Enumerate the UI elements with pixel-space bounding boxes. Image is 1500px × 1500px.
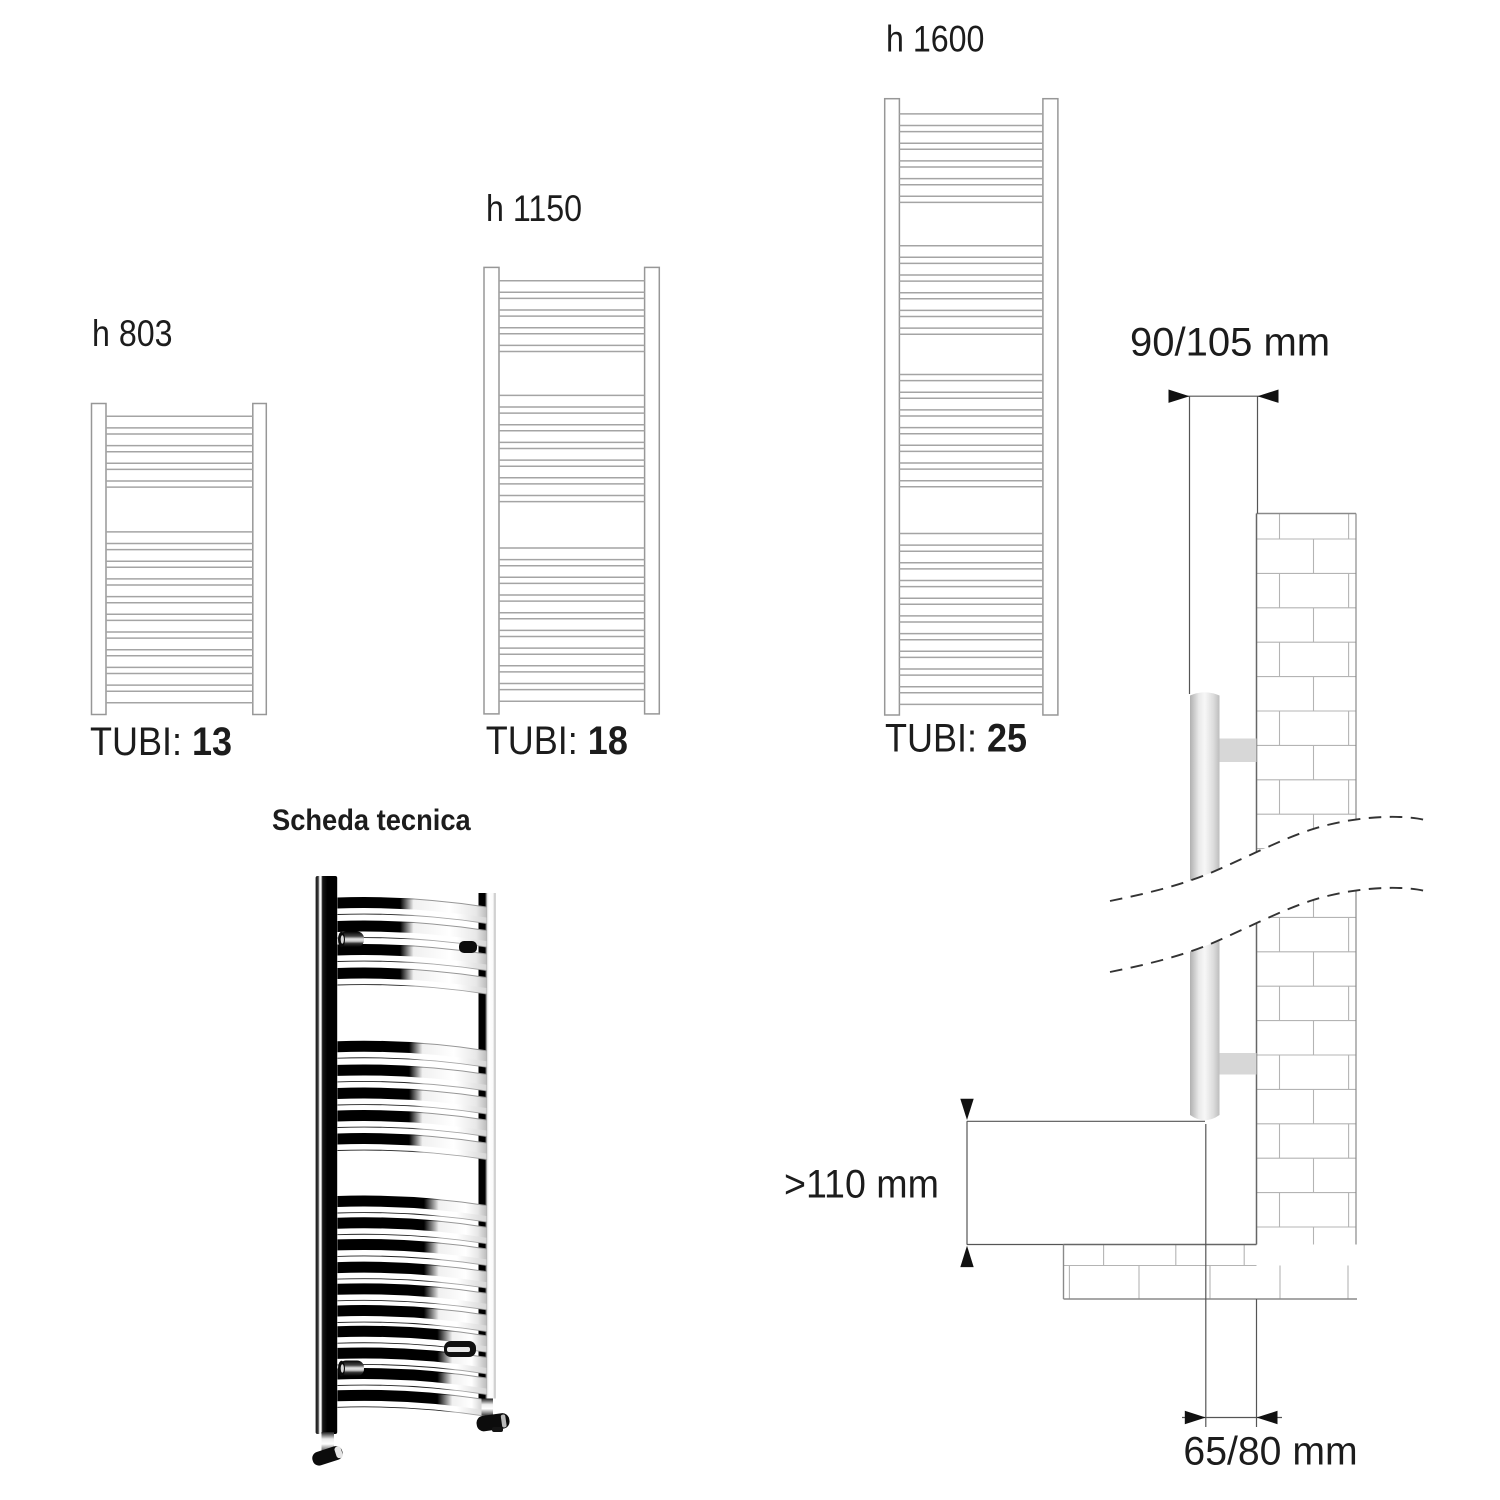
svg-text:TUBI: 18: TUBI: 18 — [486, 720, 628, 764]
svg-text:90/105 mm: 90/105 mm — [1130, 321, 1330, 365]
svg-text:65/80 mm: 65/80 mm — [1183, 1429, 1357, 1473]
svg-text:TUBI: 25: TUBI: 25 — [885, 717, 1027, 761]
svg-text:h 803: h 803 — [92, 314, 173, 355]
svg-text:>110 mm: >110 mm — [784, 1162, 939, 1206]
svg-text:Scheda tecnica: Scheda tecnica — [272, 804, 472, 837]
svg-text:h 1150: h 1150 — [486, 189, 582, 230]
svg-text:TUBI: 13: TUBI: 13 — [90, 720, 232, 764]
svg-text:h 1600: h 1600 — [886, 19, 984, 60]
